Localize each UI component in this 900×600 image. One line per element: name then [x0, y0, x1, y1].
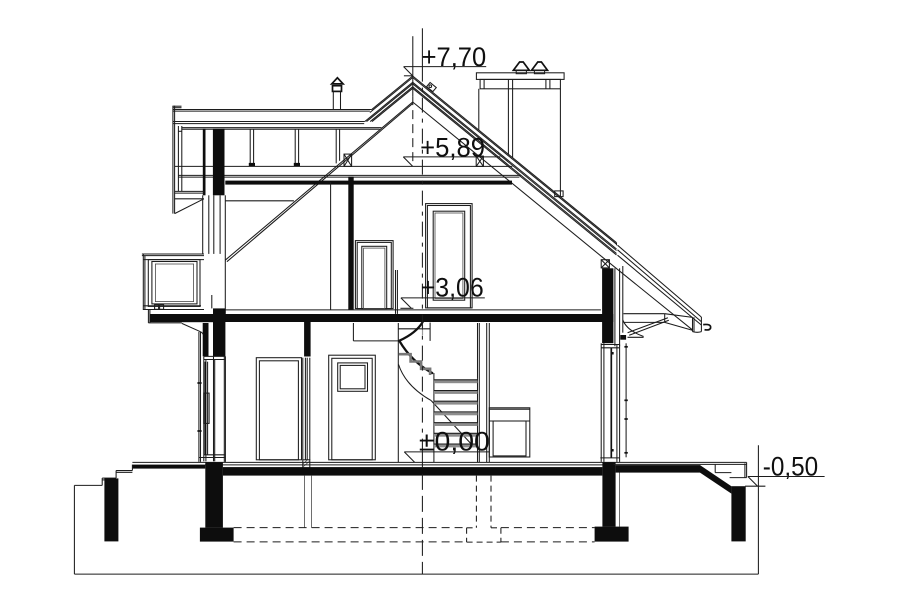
svg-text:+5,89: +5,89: [420, 132, 485, 162]
svg-text:+7,70: +7,70: [422, 42, 487, 72]
